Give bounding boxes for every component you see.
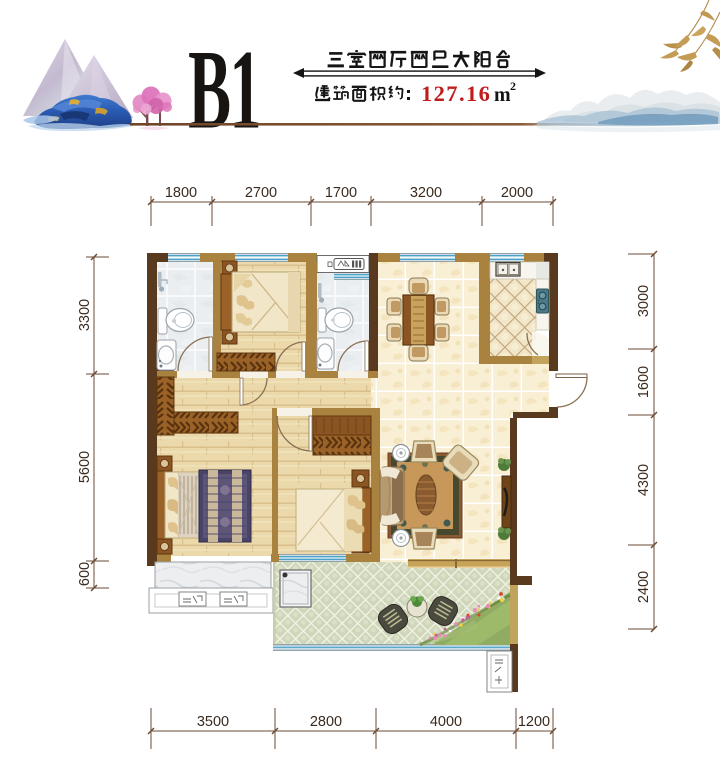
svg-text:2700: 2700 [245,185,277,201]
svg-text:4300: 4300 [636,464,652,496]
svg-text:1200: 1200 [518,714,550,730]
svg-text:600: 600 [77,562,93,586]
svg-text:127.16: 127.16 [421,81,491,106]
svg-text:2: 2 [510,79,516,93]
svg-text:m: m [494,84,511,106]
svg-text:2000: 2000 [501,185,533,201]
svg-text:1600: 1600 [636,366,652,398]
svg-text:B1: B1 [188,27,260,152]
svg-text:4000: 4000 [430,714,462,730]
svg-text:1700: 1700 [325,185,357,201]
svg-text:2400: 2400 [636,571,652,603]
svg-text:2800: 2800 [310,714,342,730]
svg-text:3500: 3500 [197,714,229,730]
svg-text:3000: 3000 [636,285,652,317]
svg-text:1800: 1800 [165,185,197,201]
svg-text:3300: 3300 [77,299,93,331]
svg-text:5600: 5600 [77,451,93,483]
svg-text:3200: 3200 [410,185,442,201]
